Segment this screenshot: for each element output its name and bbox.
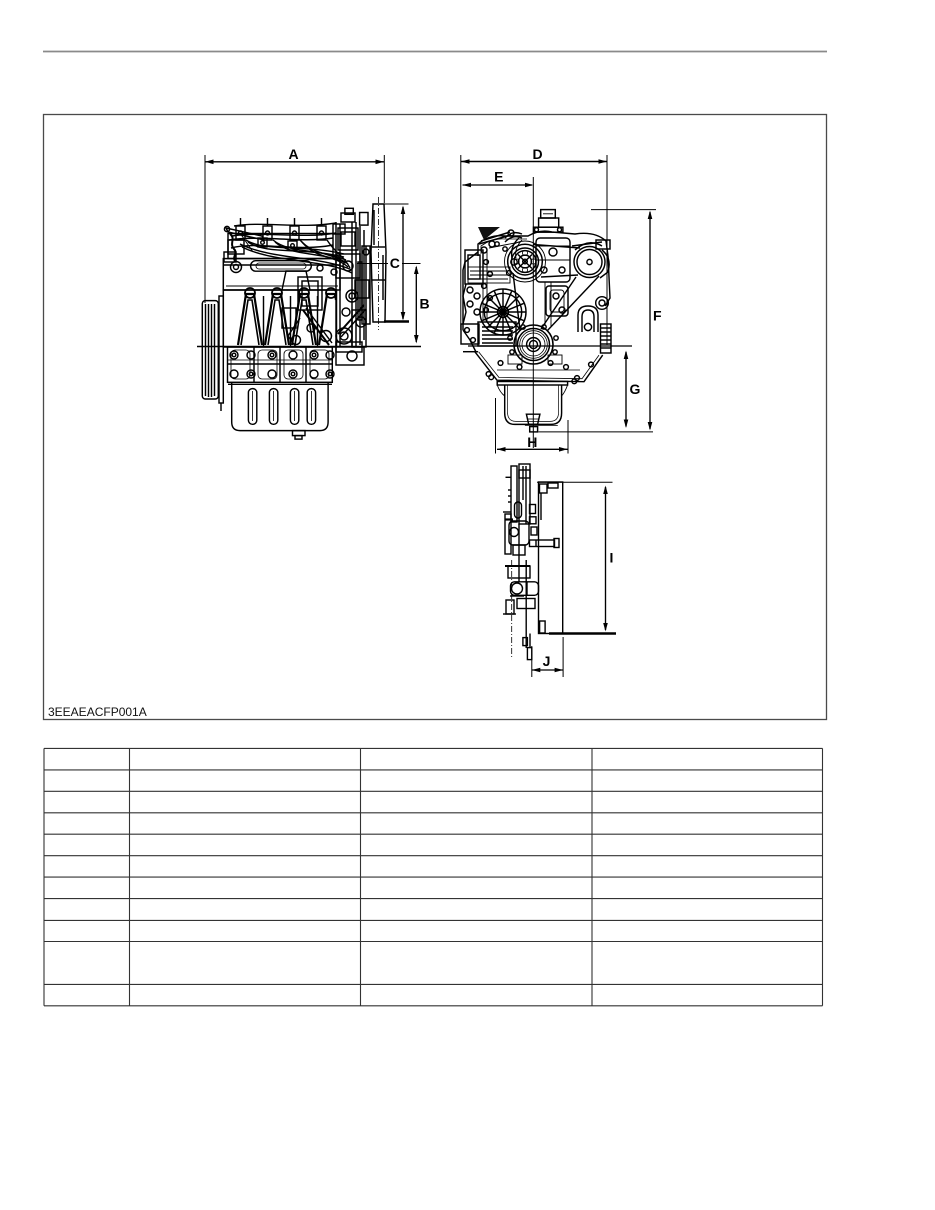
- svg-text:B: B: [419, 296, 429, 312]
- svg-text:A: A: [288, 146, 298, 162]
- svg-text:I: I: [610, 550, 614, 566]
- svg-text:F: F: [653, 308, 662, 324]
- svg-text:E: E: [494, 169, 503, 185]
- svg-text:J: J: [543, 653, 551, 669]
- svg-text:3EEAEACFP001A: 3EEAEACFP001A: [48, 705, 147, 719]
- svg-text:H: H: [527, 434, 537, 450]
- svg-text:C: C: [390, 255, 400, 271]
- svg-text:G: G: [630, 381, 641, 397]
- svg-text:D: D: [532, 146, 542, 162]
